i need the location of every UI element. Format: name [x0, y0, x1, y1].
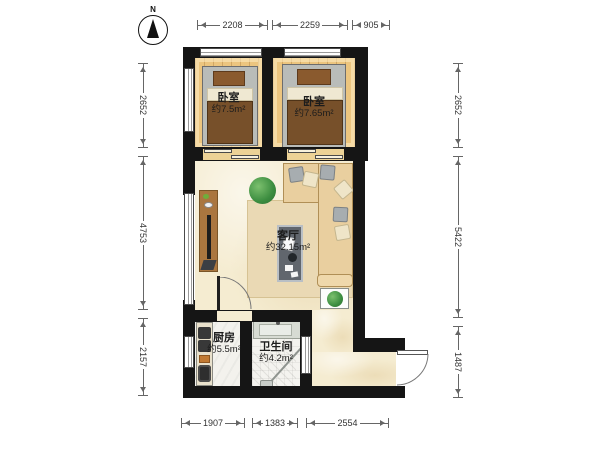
room-name: 卧室: [273, 96, 355, 109]
bathroom-vanity: [253, 320, 301, 339]
wall-right-upper: [355, 47, 368, 161]
sliding-door-bedroom-left: [203, 149, 260, 160]
dim-value: 5422: [453, 225, 463, 249]
dim-bottom-3: 2554: [306, 417, 389, 429]
north-arrow: N: [136, 6, 170, 45]
bathroom-door: [301, 336, 311, 374]
dim-top-2: 2259: [272, 19, 348, 31]
table-plate: [291, 271, 299, 277]
room-area: 约32.15m²: [253, 243, 323, 254]
planter-plant: [327, 291, 343, 307]
bathroom-label: 卫生间 约4.2m²: [250, 341, 302, 365]
dim-right-2: 5422: [452, 156, 464, 318]
dim-value: 905: [361, 20, 380, 30]
cabinet-mat: [200, 260, 216, 270]
sofa-armrest: [317, 274, 353, 287]
dim-value: 2259: [298, 20, 322, 30]
dim-top-3: 905: [352, 19, 390, 31]
dim-value: 2157: [138, 345, 148, 369]
living-room-label: 客厅 约32.15m²: [253, 230, 323, 254]
wall-right-mid: [353, 161, 365, 352]
room-area: 约5.5m²: [205, 345, 243, 356]
dim-value: 2554: [335, 418, 359, 428]
entry-floor: [312, 352, 396, 388]
sliding-door-bedroom-right: [287, 149, 344, 160]
planter-box: [320, 288, 349, 309]
dim-value: 4753: [138, 221, 148, 245]
room-area: 约7.5m²: [195, 105, 262, 116]
sofa-cushion: [319, 164, 335, 180]
cutting-board: [199, 355, 210, 363]
room-name: 卧室: [195, 92, 262, 105]
dim-value: 2652: [453, 93, 463, 117]
kitchen-door-swing-arc: [220, 277, 252, 310]
tv-screen: [207, 215, 211, 259]
bed-left-pillow: [213, 71, 245, 86]
window-bedroom-left-side: [184, 68, 194, 132]
dim-left-2: 4753: [137, 156, 149, 310]
dim-right-1: 2652: [452, 63, 464, 148]
dim-value: 1383: [263, 418, 287, 428]
bedroom-left-label: 卧室 约7.5m²: [195, 92, 262, 116]
room-area: 约7.65m²: [273, 109, 355, 120]
sofa-cushion: [302, 171, 320, 189]
dim-left-3: 2157: [137, 318, 149, 396]
floor-plan-canvas: N: [0, 0, 600, 450]
bed-right-pillow: [297, 69, 331, 85]
dim-right-3: 1487: [452, 326, 464, 398]
living-plant: [249, 177, 276, 204]
dim-left-1: 2652: [137, 63, 149, 148]
window-living-left: [184, 193, 194, 305]
cabinet-plant-icon: [203, 194, 209, 199]
dim-top-1: 2208: [197, 19, 268, 31]
dim-value: 1907: [201, 418, 225, 428]
north-label: N: [136, 6, 170, 14]
cabinet-dish: [204, 202, 213, 208]
table-plate: [285, 265, 293, 271]
sofa-cushion: [334, 224, 351, 241]
entry-door-swing-arc: [397, 354, 429, 386]
window-bedroom-left: [200, 48, 262, 57]
dim-value: 2208: [220, 20, 244, 30]
dim-bottom-1: 1907: [181, 417, 245, 429]
room-name: 厨房: [205, 332, 243, 345]
room-name: 客厅: [253, 230, 323, 243]
dim-value: 1487: [453, 350, 463, 374]
bathroom-sink: [259, 324, 292, 336]
window-kitchen-left: [184, 336, 194, 368]
window-bedroom-right: [284, 48, 341, 57]
tv-cabinet: [199, 190, 218, 272]
room-name: 卫生间: [250, 341, 302, 354]
compass-circle-icon: [138, 15, 168, 45]
table-bowl: [288, 253, 297, 262]
dim-bottom-2: 1383: [252, 417, 298, 429]
dim-value: 2652: [138, 93, 148, 117]
room-area: 约4.2m²: [250, 354, 302, 365]
wall-bottom: [183, 386, 405, 398]
kitchen-door-opening: [217, 311, 252, 321]
kitchen-sink: [198, 365, 211, 382]
wall-bedroom-divider: [262, 58, 273, 147]
kitchen-label: 厨房 约5.5m²: [205, 332, 243, 356]
compass-needle-icon: [147, 19, 159, 38]
hallway-floor: [312, 310, 353, 352]
bedroom-right-label: 卧室 约7.65m²: [273, 96, 355, 120]
sofa-cushion: [333, 207, 349, 223]
